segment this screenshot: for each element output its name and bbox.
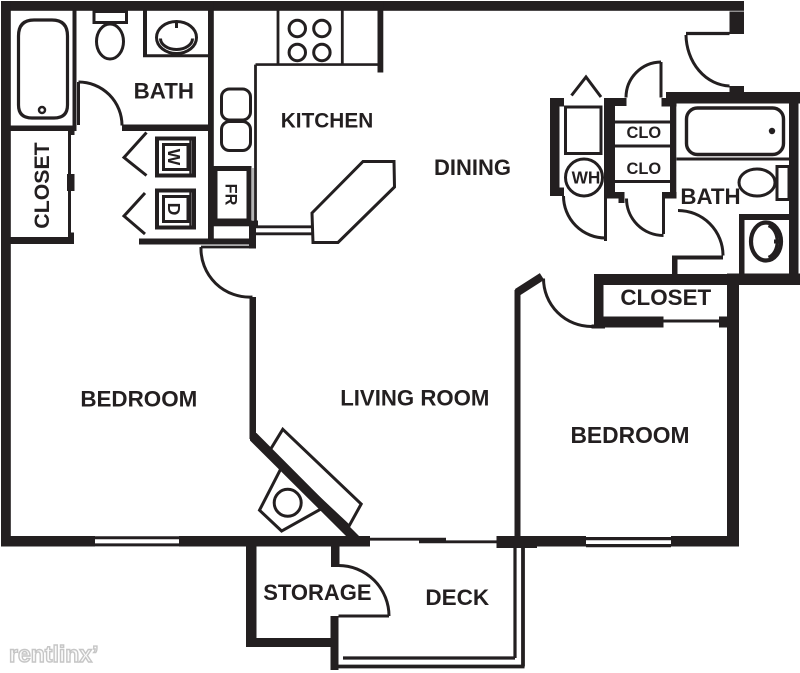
svg-text:DECK: DECK (425, 585, 490, 610)
svg-text:DINING: DINING (434, 155, 511, 180)
svg-text:FR: FR (222, 184, 240, 206)
svg-text:CLOSET: CLOSET (30, 142, 54, 228)
svg-text:CLO: CLO (626, 124, 661, 142)
svg-text:BATH: BATH (680, 184, 740, 209)
svg-text:rentlinxʼ: rentlinxʼ (9, 641, 98, 667)
svg-text:STORAGE: STORAGE (263, 580, 371, 605)
svg-text:CLOSET: CLOSET (620, 285, 711, 310)
svg-text:KITCHEN: KITCHEN (281, 109, 373, 132)
svg-text:D: D (164, 203, 184, 216)
svg-text:CLO: CLO (626, 160, 661, 178)
svg-text:WH: WH (572, 168, 601, 188)
svg-text:W: W (164, 149, 184, 166)
svg-text:BATH: BATH (134, 79, 194, 104)
svg-text:LIVING ROOM: LIVING ROOM (340, 385, 489, 410)
svg-text:BEDROOM: BEDROOM (570, 422, 689, 448)
svg-text:BEDROOM: BEDROOM (80, 387, 197, 412)
